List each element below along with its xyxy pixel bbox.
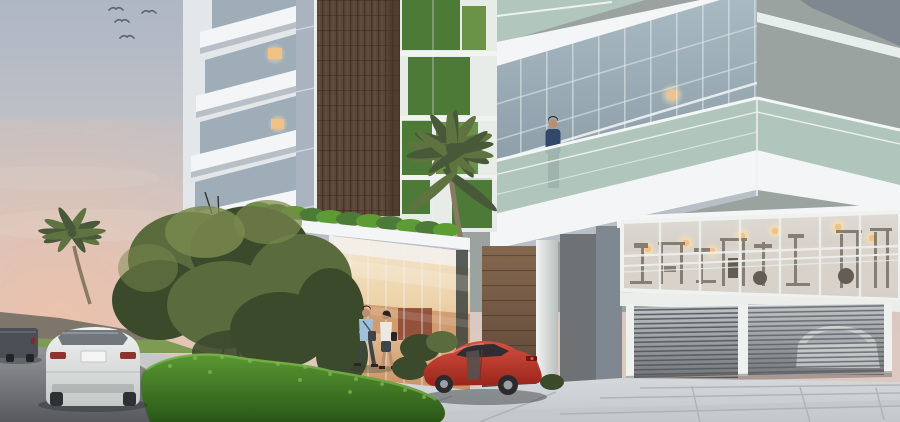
wheel (6, 354, 14, 362)
gray-pier (596, 226, 622, 402)
wheel (123, 392, 136, 406)
blouse (380, 322, 392, 342)
tower-side-face (296, 0, 314, 228)
shoe (379, 366, 385, 369)
window-light (668, 91, 676, 99)
shutter-post (884, 303, 892, 373)
shoe (371, 364, 378, 367)
wood-shade-edge (388, 0, 400, 216)
rear-rim (504, 381, 513, 390)
white-pilaster (314, 0, 317, 216)
shutter-slats-right (748, 304, 884, 375)
dark-van (0, 328, 42, 364)
green-wall-panel (462, 6, 486, 50)
taillight-glow (530, 357, 533, 360)
shoe (354, 363, 361, 366)
front-rim (440, 380, 448, 388)
taillight-left (50, 352, 66, 359)
handbag (391, 332, 397, 341)
rear-bumper (52, 384, 134, 393)
architectural-rendering (0, 0, 900, 422)
head (549, 120, 558, 129)
scene-canvas (0, 0, 900, 422)
slab-band (400, 51, 497, 56)
license-plate (81, 351, 106, 362)
green-wall-panel (402, 0, 460, 50)
head (362, 309, 370, 317)
taillight-right (120, 352, 136, 359)
gym-window (617, 204, 900, 302)
wheel (26, 354, 34, 362)
shutter-post (738, 305, 748, 376)
wood-plank-lines (317, 0, 400, 216)
white-balcony-tower (183, 0, 314, 236)
shoulder-bag (368, 331, 376, 341)
wheel (50, 392, 63, 406)
dark-stone-wall (560, 234, 596, 400)
wood-clad-tower (314, 0, 400, 216)
shutter-post (626, 304, 634, 379)
lit-window (268, 48, 282, 59)
gym-interior (622, 212, 900, 302)
garage-shutter (620, 292, 900, 382)
lit-window (271, 119, 284, 129)
green-wall-panel (408, 57, 470, 115)
skirt (381, 341, 391, 352)
van-taillight (31, 338, 35, 344)
white-suv (38, 327, 148, 412)
shutter-slats-left (634, 306, 738, 378)
